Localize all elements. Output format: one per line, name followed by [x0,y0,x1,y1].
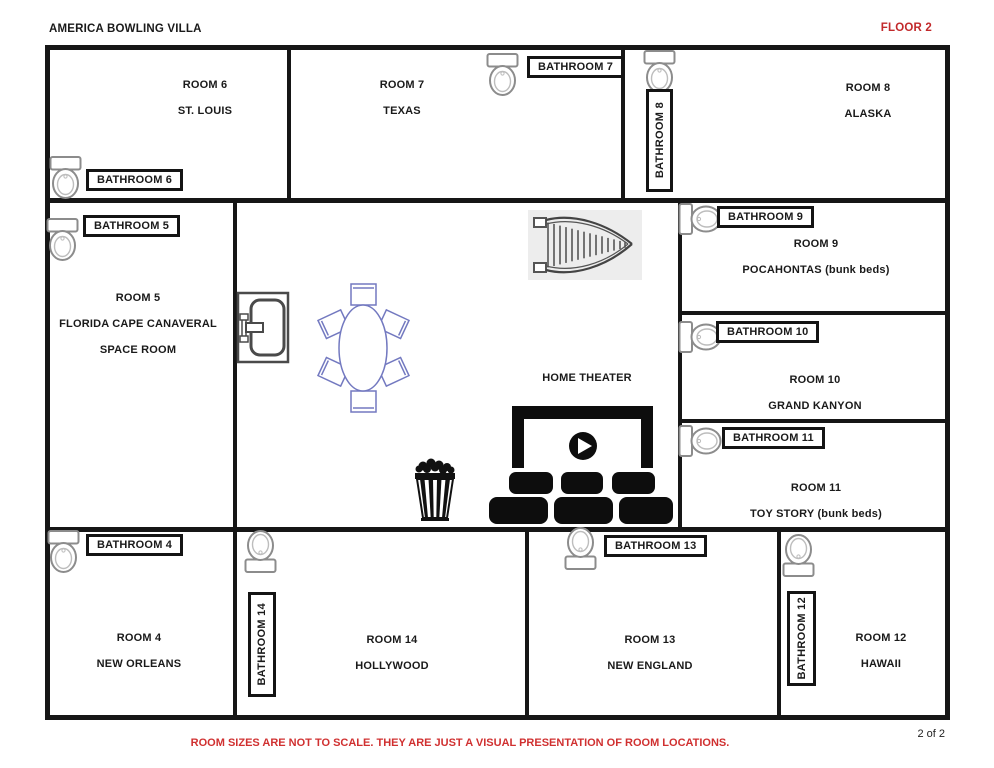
footer-note: ROOM SIZES ARE NOT TO SCALE. THEY ARE JU… [191,737,730,749]
bathroom-4-label: BATHROOM 4 [86,534,183,556]
document-title: AMERICA BOWLING VILLA [49,23,202,35]
wall-top-row-bottom [45,198,950,203]
bathroom-6-label: BATHROOM 6 [86,169,183,191]
dining-table-icon [316,282,410,414]
bathroom-10-label: BATHROOM 10 [716,321,819,343]
wall-room10-room11 [678,419,950,423]
wall-room14-room13 [525,527,529,720]
wall-room4-room14 [233,527,237,720]
wall-lounge-right-rooms [678,199,682,532]
bathroom-14-label: BATHROOM 14 [248,592,276,697]
toilet-icon [678,425,724,458]
room-11-label: ROOM 11TOY STORY (bunk beds) [750,475,882,527]
bathroom-12-label: BATHROOM 12 [787,591,816,686]
room-7-label: ROOM 7TEXAS [380,72,425,124]
play-icon [569,432,597,460]
bathroom-9-label: BATHROOM 9 [717,206,814,228]
bathroom-11-label: BATHROOM 11 [722,427,825,449]
room-12-label: ROOM 12HAWAII [856,625,907,677]
sink-icon [236,291,290,364]
wall-room9-room10 [678,311,950,315]
room-8-label: ROOM 8ALASKA [844,75,891,127]
wall-room6-room7 [287,45,291,202]
page-number: 2 of 2 [917,728,945,740]
wall-room13-room12 [777,527,781,720]
room-6-label: ROOM 6ST. LOUIS [178,72,232,124]
popcorn-icon [411,455,459,523]
movie-screen-icon [510,404,655,470]
stairs-icon [528,210,642,280]
toilet-icon [564,525,597,571]
wall-room5-lounge [233,199,237,532]
room-14-label: ROOM 14HOLLYWOOD [355,627,429,679]
toilet-icon [486,52,519,98]
floor-label: FLOOR 2 [881,22,932,34]
room-9-label: ROOM 9POCAHONTAS (bunk beds) [742,231,889,283]
toilet-icon [782,532,815,578]
toilet-icon [244,528,277,574]
floor-plan-page: AMERICA BOWLING VILLA FLOOR 2 BATHROOM 6… [0,0,994,768]
toilet-icon [47,529,80,575]
bathroom-5-label: BATHROOM 5 [83,215,180,237]
room-5-label: ROOM 5FLORIDA CAPE CANAVERALSPACE ROOM [59,285,217,363]
toilet-icon [49,155,82,201]
home-theater-label: HOME THEATER [542,365,632,391]
room-10-label: ROOM 10GRAND KANYON [768,367,861,419]
bathroom-7-label: BATHROOM 7 [527,56,624,78]
room-4-label: ROOM 4NEW ORLEANS [97,625,182,677]
theater-seats-icon [486,470,676,525]
toilet-icon [46,217,79,263]
bathroom-8-label: BATHROOM 8 [646,89,673,192]
bathroom-13-label: BATHROOM 13 [604,535,707,557]
room-13-label: ROOM 13NEW ENGLAND [607,627,692,679]
